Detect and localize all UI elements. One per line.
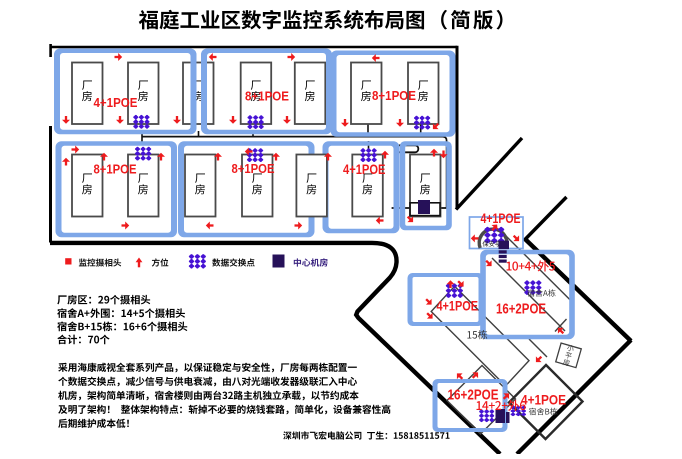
svg-text:16+2POE: 16+2POE (496, 301, 546, 318)
svg-text:16+2POE: 16+2POE (448, 387, 499, 404)
svg-text:8+1POE: 8+1POE (245, 89, 289, 104)
svg-text:4+1POE: 4+1POE (437, 299, 479, 314)
svg-text:4+1POE: 4+1POE (521, 393, 566, 408)
svg-text:8+1POE: 8+1POE (232, 161, 275, 176)
svg-text:4+1POE: 4+1POE (343, 162, 386, 177)
svg-text:8+1POE: 8+1POE (372, 88, 416, 103)
svg-text:8+1POE: 8+1POE (94, 162, 137, 177)
svg-text:4+1POE: 4+1POE (481, 211, 521, 226)
svg-text:4+1POE: 4+1POE (94, 95, 138, 110)
